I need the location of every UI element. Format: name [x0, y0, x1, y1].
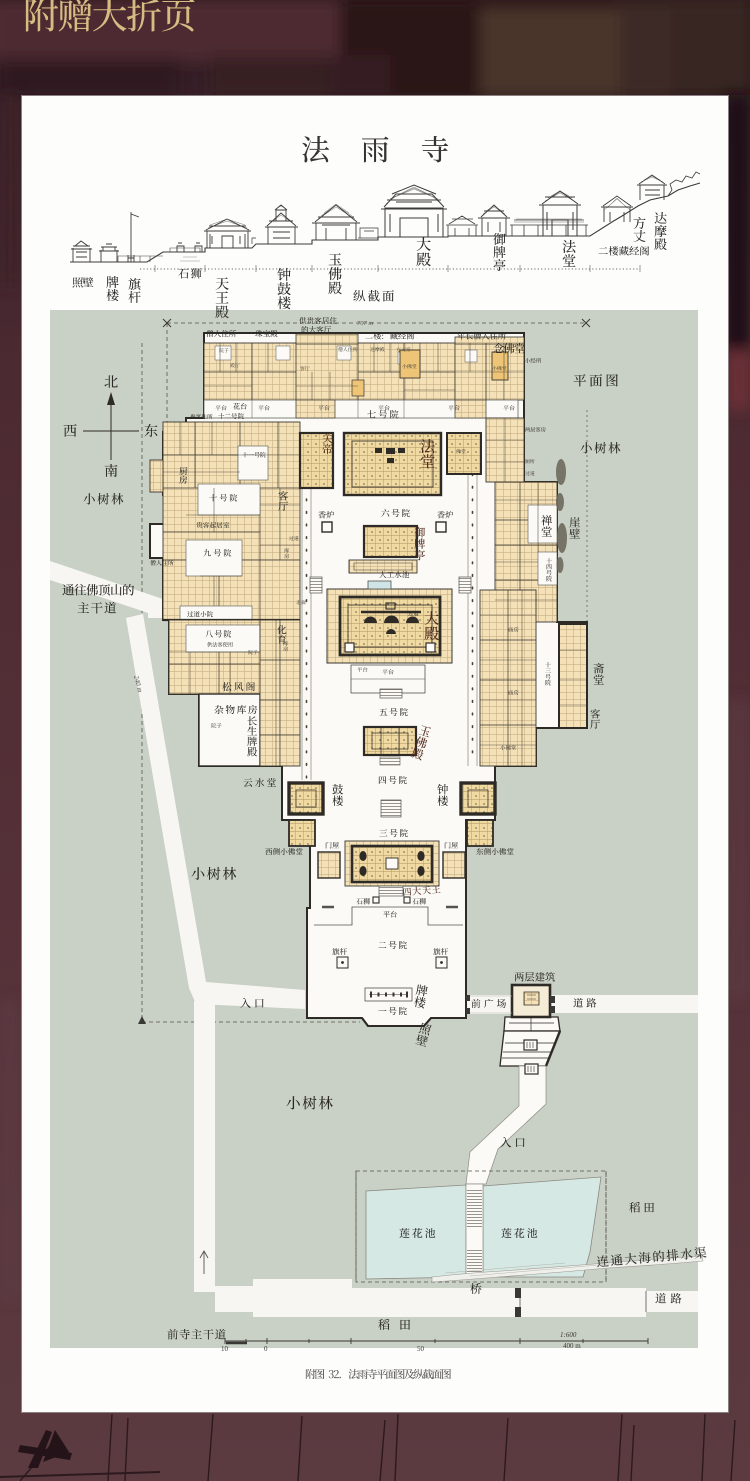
svg-text:0: 0 — [264, 1345, 268, 1353]
svg-text:400 m: 400 m — [563, 1342, 581, 1350]
svg-text:50: 50 — [417, 1345, 425, 1353]
svg-text:1:600: 1:600 — [560, 1331, 577, 1339]
svg-text:10: 10 — [221, 1345, 229, 1353]
svg-text:707 m: 707 m — [357, 320, 373, 327]
